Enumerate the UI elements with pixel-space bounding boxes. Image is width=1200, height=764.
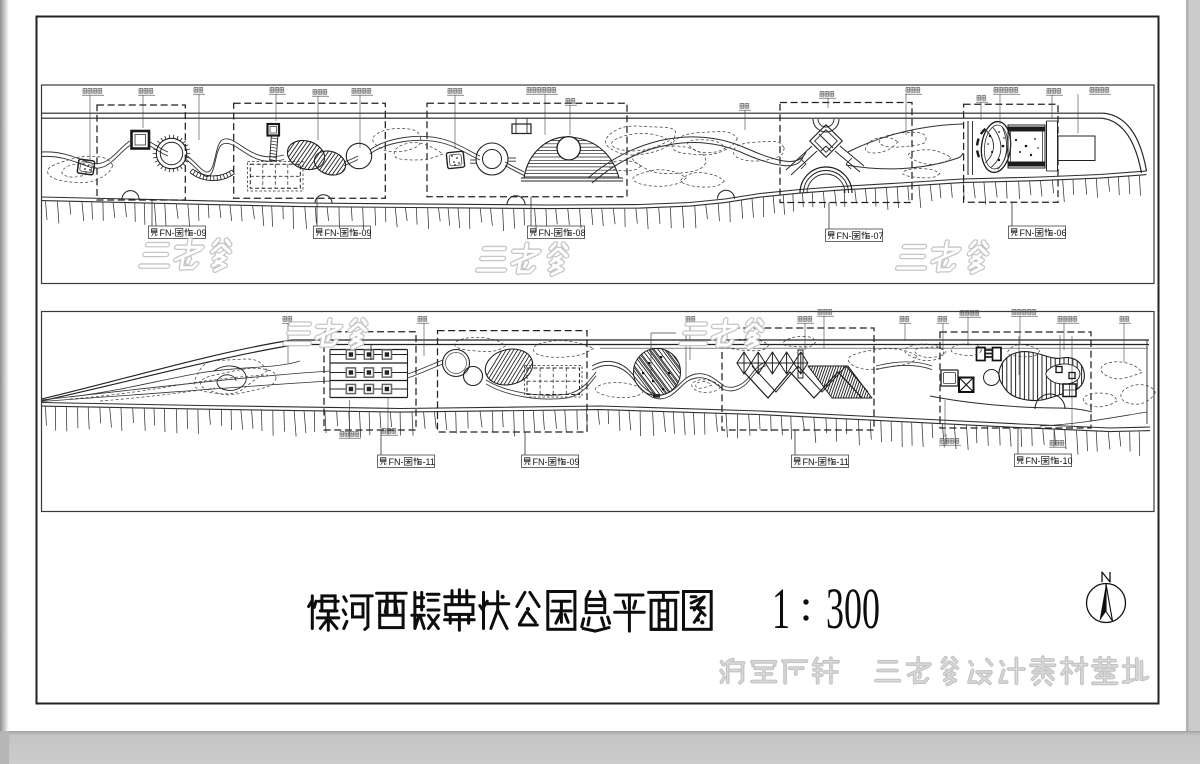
svg-text:1: 1	[772, 576, 790, 641]
svg-text:-09: -09	[359, 228, 372, 238]
svg-text:300: 300	[826, 576, 880, 641]
svg-text:FN-: FN-	[539, 228, 554, 238]
svg-text:FN-: FN-	[389, 457, 404, 467]
svg-text:FN-: FN-	[160, 228, 175, 238]
svg-text:FN-: FN-	[1026, 456, 1041, 466]
svg-text:-07: -07	[871, 231, 884, 241]
svg-text:-11: -11	[423, 457, 435, 467]
svg-text:-09: -09	[567, 457, 580, 467]
svg-text:-10: -10	[1060, 456, 1073, 466]
svg-text:-08: -08	[573, 228, 586, 238]
svg-text:-11: -11	[837, 457, 849, 467]
svg-text:-06: -06	[1054, 228, 1067, 238]
svg-text:FN-: FN-	[325, 228, 340, 238]
svg-text:FN-: FN-	[1020, 228, 1035, 238]
svg-text:FN-: FN-	[533, 457, 548, 467]
svg-text:FN-: FN-	[837, 231, 852, 241]
svg-text:-09: -09	[194, 228, 207, 238]
svg-text:FN-: FN-	[803, 457, 818, 467]
